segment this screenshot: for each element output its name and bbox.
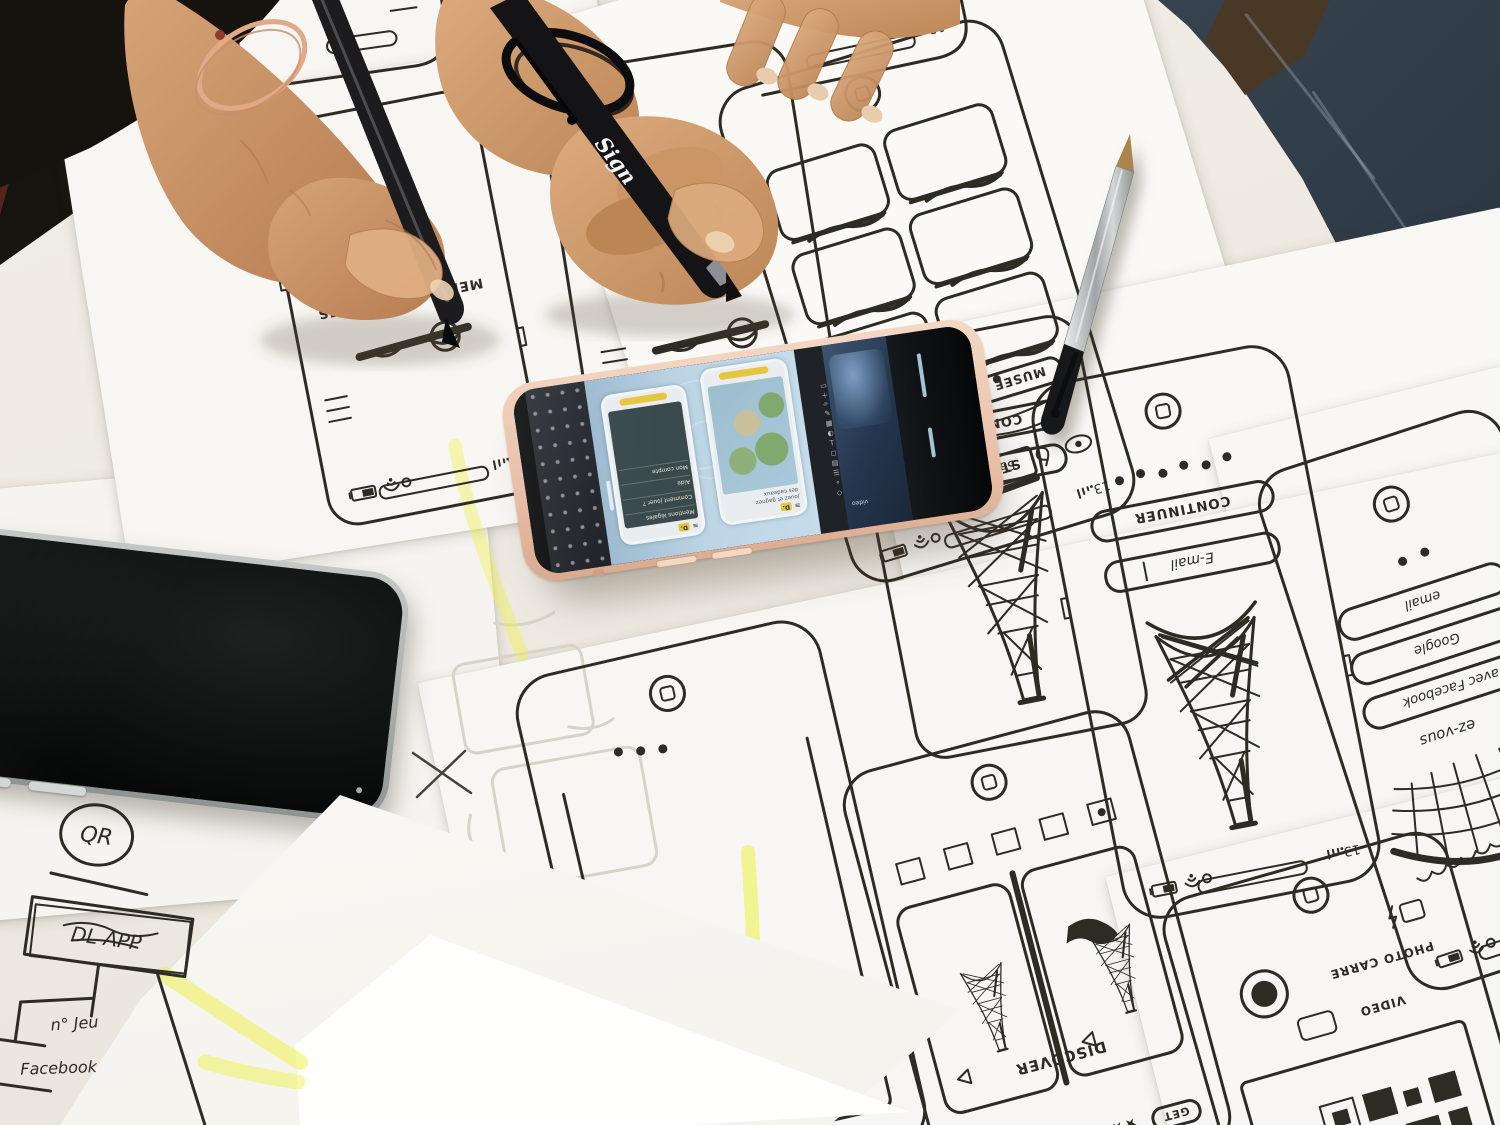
hamburger-icon: ≡ — [794, 501, 801, 508]
pen-tip — [1116, 134, 1134, 172]
hand-right: Sign — [420, 0, 960, 360]
qr-label: QR — [79, 822, 115, 851]
photo-scene: 13 MENTIONS LEGALES 13 Jouez et gagnez d… — [0, 0, 1500, 1125]
map-view — [707, 375, 798, 494]
flowchart-sketch: QR DL APP n° Jeu Facebook — [0, 772, 441, 1125]
flow-label-jeu: n° Jeu — [50, 1012, 99, 1034]
bezel-reflection — [917, 353, 927, 397]
yellow-action-button — [718, 366, 768, 380]
menu-panel: Mentions légales Comment jouer ? Aide Mo… — [607, 401, 698, 529]
bezel-reflection — [928, 427, 936, 457]
ballpoint-pen — [1018, 130, 1158, 450]
hamburger-icon: ≡ — [692, 522, 699, 529]
design-canvas: ≡ D. Mentions légales Comment jouer ? Ai… — [584, 350, 822, 565]
app-logo: D. — [678, 522, 690, 532]
dl-app-label: DL APP — [70, 922, 144, 956]
wallpaper-thumbnail — [828, 348, 893, 430]
mockup-map: ≡ D. Jouez et gagnez des cadeaux — [698, 357, 808, 526]
flow-label-facebook: Facebook — [20, 1057, 98, 1079]
panel-label: video — [851, 497, 868, 506]
app-logo: D. — [780, 502, 792, 512]
